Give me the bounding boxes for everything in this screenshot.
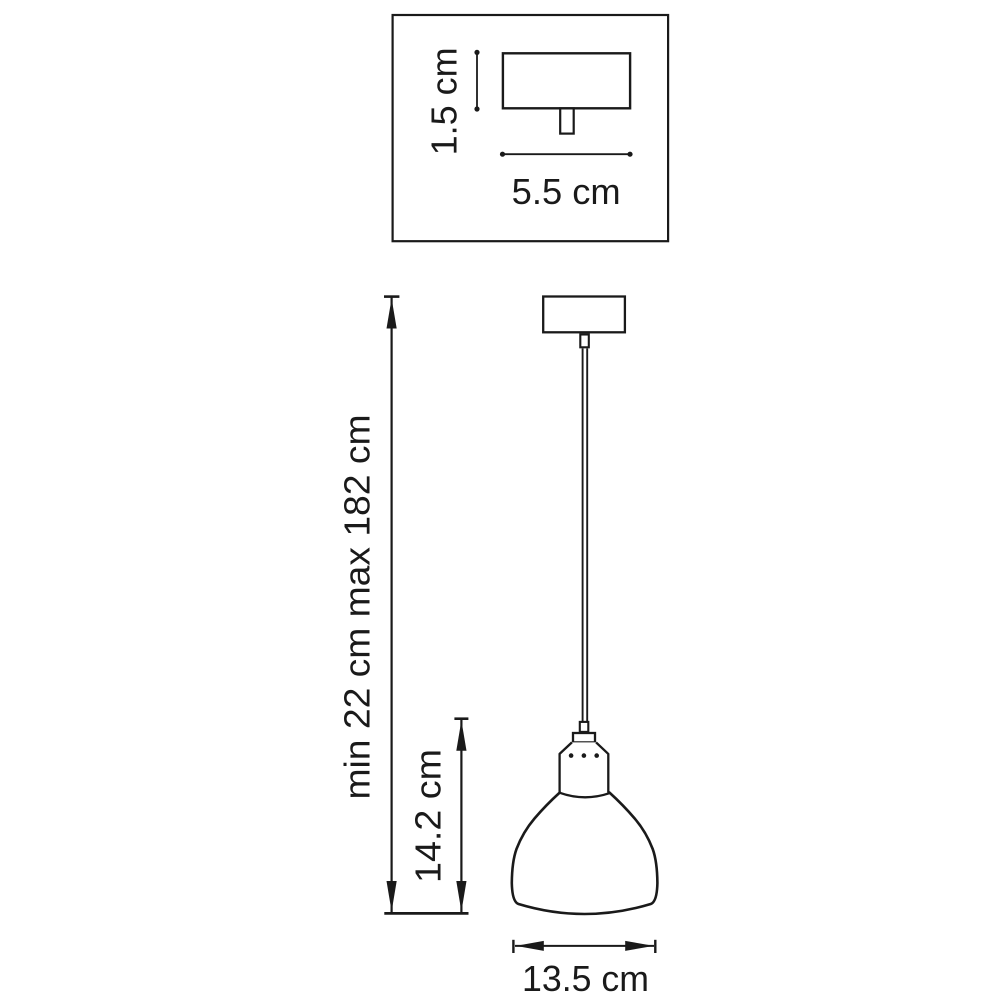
svg-text:min 22 cm max 182 cm: min 22 cm max 182 cm [337,415,378,800]
svg-text:13.5 cm: 13.5 cm [522,958,649,999]
svg-text:14.2 cm: 14.2 cm [407,749,448,883]
svg-text:1.5 cm: 1.5 cm [423,47,464,155]
svg-text:5.5 cm: 5.5 cm [512,171,621,212]
